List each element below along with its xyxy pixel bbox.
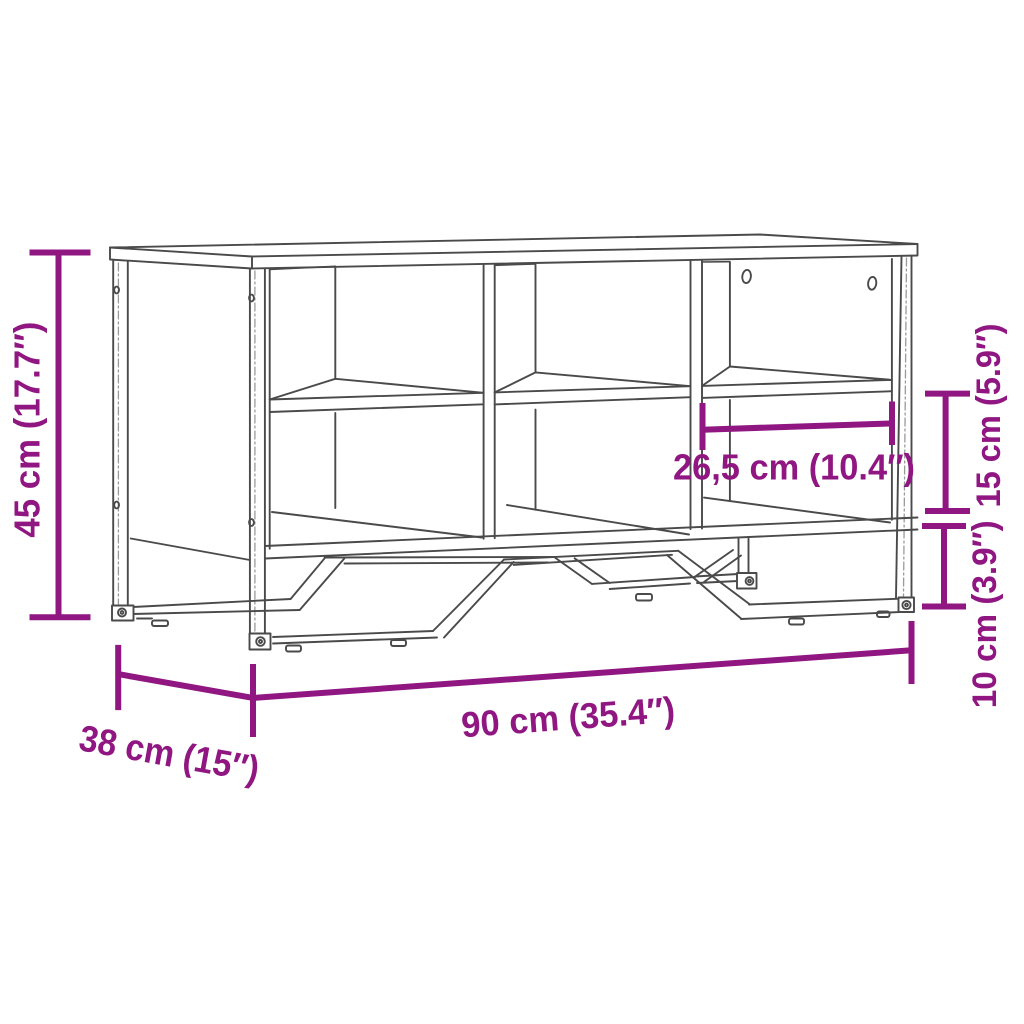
svg-text:10 cm (3.9″): 10 cm (3.9″): [966, 520, 1004, 708]
svg-text:45 cm (17.7″): 45 cm (17.7″): [7, 322, 48, 538]
svg-text:15 cm (5.9″): 15 cm (5.9″): [970, 324, 1008, 508]
svg-text:26,5 cm (10.4″): 26,5 cm (10.4″): [673, 447, 915, 488]
